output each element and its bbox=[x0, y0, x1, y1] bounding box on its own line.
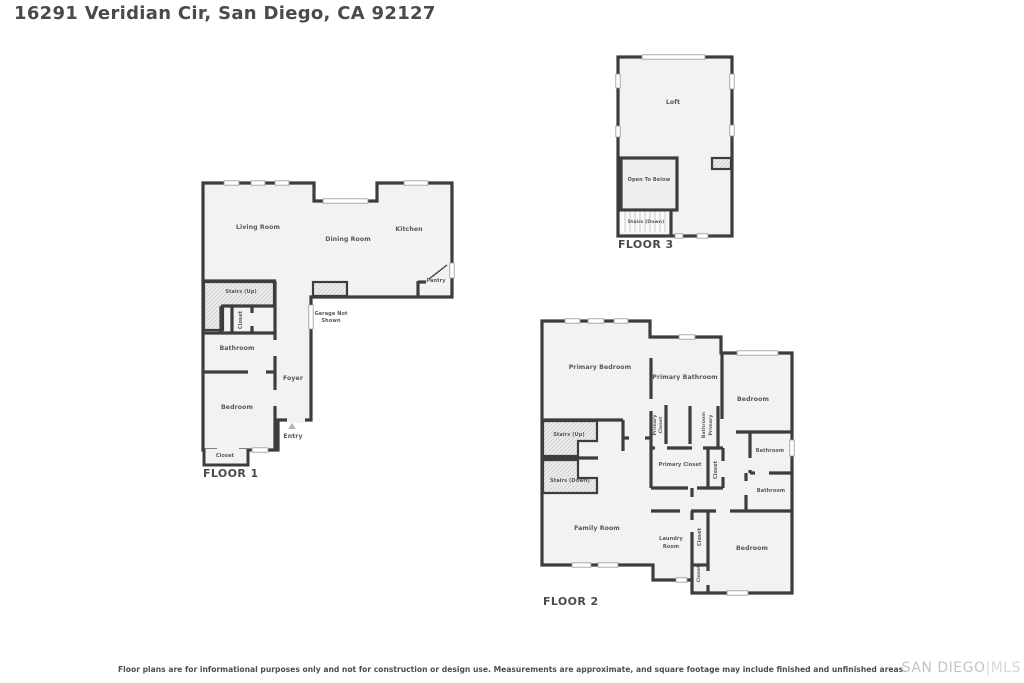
floorplan-page: 16291 Veridian Cir, San Diego, CA 92127 bbox=[0, 0, 1024, 683]
room-label-bedroom: Bedroom bbox=[221, 404, 253, 411]
floor2-walls bbox=[542, 321, 792, 593]
room-label-laundry-line2: Room bbox=[663, 544, 679, 550]
room-label-primary-bathroom-v2: Primary bbox=[708, 414, 714, 435]
floor2-title: FLOOR 2 bbox=[543, 595, 599, 608]
page-title: 16291 Veridian Cir, San Diego, CA 92127 bbox=[14, 3, 436, 24]
room-label-kitchen: Kitchen bbox=[395, 226, 422, 233]
floor1-plan: Living Room Dining Room Kitchen Pantry S… bbox=[195, 175, 465, 485]
room-label-bathroom: Bathroom bbox=[219, 345, 254, 352]
room-label-closet-lower: Closet bbox=[216, 453, 235, 459]
room-label-primary-closet-room: Primary Closet bbox=[659, 462, 702, 468]
room-label-bedroom-top: Bedroom bbox=[737, 396, 769, 403]
room-label-closet-mid: Closet bbox=[713, 460, 719, 479]
room-label-stairs-down: Stairs (Down) bbox=[550, 478, 590, 484]
mls-watermark-left: SAN DIEGO bbox=[902, 660, 986, 676]
room-label-open-to-below: Open To Below bbox=[628, 177, 671, 183]
room-label-family-room: Family Room bbox=[574, 525, 620, 532]
room-label-primary-bedroom: Primary Bedroom bbox=[569, 364, 631, 371]
room-label-closet-small: Closet bbox=[696, 565, 702, 582]
room-label-primary-bathroom-v1: Bathroom bbox=[701, 412, 707, 438]
floor3-walls bbox=[618, 57, 732, 236]
disclaimer-text: Floor plans are for informational purpos… bbox=[0, 665, 1024, 674]
room-label-stairs-down: Stairs (Down) bbox=[628, 219, 665, 225]
mls-watermark-right: |MLS bbox=[986, 660, 1021, 676]
room-label-bathroom-lower: Bathroom bbox=[757, 488, 785, 494]
floor3-plan: Loft Open To Below Stairs (Down) FLOOR 3 bbox=[600, 45, 760, 255]
floor2-plan: Primary Bedroom Primary Bathroom Bedroom… bbox=[535, 310, 805, 610]
floor1-title: FLOOR 1 bbox=[203, 467, 259, 480]
room-label-entry: Entry bbox=[283, 433, 302, 440]
room-label-loft: Loft bbox=[666, 99, 680, 106]
room-label-primary-closet-v1: Primary bbox=[652, 414, 658, 435]
room-label-living-room: Living Room bbox=[236, 224, 280, 231]
room-label-garage-note-line2: Shown bbox=[321, 318, 341, 324]
mls-watermark: SAN DIEGO|MLS bbox=[902, 660, 1021, 676]
room-label-stairs-up: Stairs (Up) bbox=[225, 289, 257, 295]
room-label-foyer: Foyer bbox=[283, 375, 304, 382]
room-label-primary-bathroom: Primary Bathroom bbox=[652, 374, 717, 381]
room-label-pantry: Pantry bbox=[426, 278, 446, 284]
room-label-bathroom-upper: Bathroom bbox=[756, 448, 784, 454]
room-label-closet-upper: Closet bbox=[238, 310, 244, 329]
room-label-primary-closet-v2: Closet bbox=[658, 416, 664, 433]
room-label-dining-room: Dining Room bbox=[325, 236, 371, 243]
room-label-garage-note-line1: Garage Not bbox=[314, 311, 348, 317]
room-label-bedroom-bottom: Bedroom bbox=[736, 545, 768, 552]
room-label-stairs-up: Stairs (Up) bbox=[553, 432, 585, 438]
entry-arrow-icon bbox=[288, 423, 296, 429]
floor3-title: FLOOR 3 bbox=[618, 238, 674, 251]
room-label-laundry-line1: Laundry bbox=[659, 536, 683, 542]
room-label-closet-laundry: Closet bbox=[697, 527, 703, 546]
